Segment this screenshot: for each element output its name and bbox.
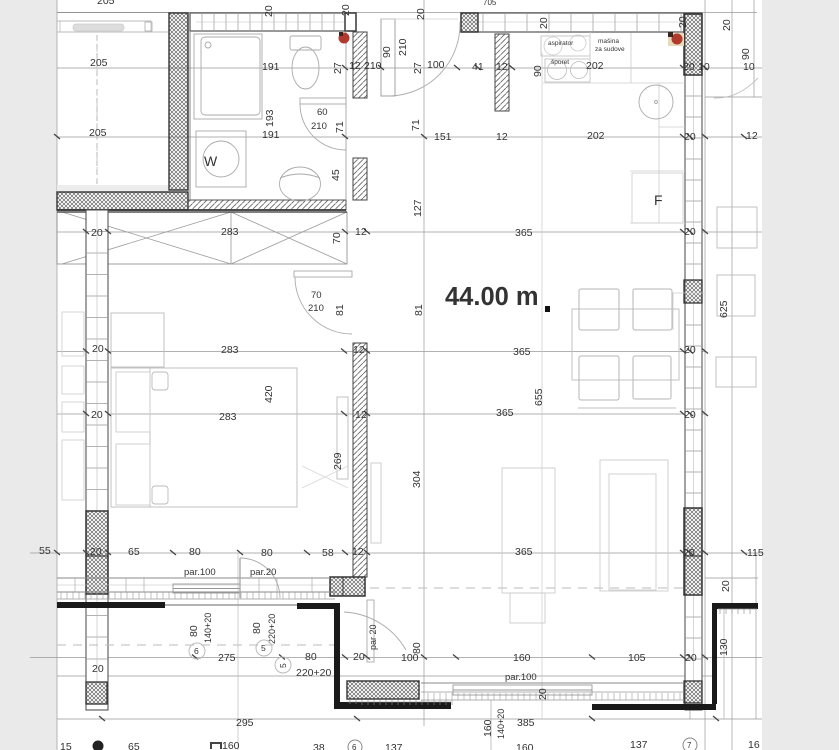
svg-text:100: 100 [427,59,445,71]
svg-text:220+20: 220+20 [296,667,331,679]
svg-text:304: 304 [411,470,423,488]
svg-text:6: 6 [194,646,199,656]
svg-text:210: 210 [364,60,382,72]
svg-text:365: 365 [515,546,533,558]
svg-text:115: 115 [747,547,764,559]
svg-text:12: 12 [349,60,361,72]
svg-text:par.100: par.100 [184,567,216,578]
svg-text:12: 12 [496,61,508,73]
svg-text:58: 58 [322,547,334,559]
svg-text:20: 20 [90,546,102,558]
svg-text:202: 202 [586,60,604,72]
svg-text:655: 655 [533,388,545,406]
svg-text:20: 20 [538,17,550,29]
svg-text:20: 20 [685,652,697,664]
svg-text:90: 90 [532,65,544,77]
svg-text:45: 45 [330,169,342,181]
svg-text:81: 81 [413,304,425,316]
svg-text:191: 191 [262,61,280,73]
svg-text:365: 365 [513,346,531,358]
svg-text:55: 55 [39,545,51,557]
svg-text:12: 12 [355,409,367,421]
svg-text:295: 295 [236,717,254,729]
svg-text:365: 365 [496,407,514,419]
svg-text:7: 7 [687,741,692,750]
svg-text:20: 20 [684,344,696,356]
svg-text:20: 20 [683,547,695,559]
svg-text:20: 20 [684,409,696,421]
svg-text:12: 12 [746,130,758,142]
svg-text:205: 205 [97,0,115,7]
svg-text:20: 20 [720,580,732,592]
svg-text:12: 12 [355,226,367,238]
svg-text:10: 10 [698,61,710,73]
svg-text:205: 205 [89,127,107,139]
svg-text:20: 20 [91,409,103,421]
svg-text:par 20: par 20 [368,624,378,650]
svg-text:20: 20 [684,131,696,143]
svg-text:41: 41 [472,61,484,73]
svg-text:160: 160 [516,742,534,750]
svg-text:202: 202 [587,130,605,142]
svg-text:625: 625 [718,300,730,318]
svg-text:65: 65 [128,741,140,750]
svg-text:151: 151 [434,131,452,143]
svg-text:20: 20 [92,663,104,675]
svg-text:16: 16 [748,739,760,750]
svg-text:420: 420 [263,385,275,403]
svg-text:par.20: par.20 [250,567,276,578]
svg-text:20: 20 [263,5,275,17]
svg-text:20: 20 [684,226,696,238]
svg-text:71: 71 [410,119,422,131]
svg-text:za sudove: za sudove [595,46,625,53]
svg-text:160: 160 [222,740,240,750]
svg-text:385: 385 [517,717,535,729]
svg-text:160: 160 [482,719,494,737]
svg-text:20: 20 [721,19,733,31]
svg-text:šporet: šporet [551,59,569,66]
svg-text:705: 705 [483,0,497,7]
svg-text:81: 81 [334,304,346,316]
svg-text:140+20: 140+20 [496,709,506,739]
svg-text:F: F [654,192,663,208]
svg-text:44.00 m: 44.00 m [445,283,539,311]
svg-text:20: 20 [537,688,549,700]
svg-text:283: 283 [221,344,239,356]
svg-text:193: 193 [264,109,276,127]
svg-text:80: 80 [251,622,263,634]
svg-text:205: 205 [90,57,108,69]
svg-text:71: 71 [334,121,346,133]
svg-text:27: 27 [412,62,424,74]
svg-text:6: 6 [352,743,357,750]
svg-text:90: 90 [381,46,393,58]
svg-text:210: 210 [311,121,327,132]
svg-text:12: 12 [353,344,365,356]
svg-text:20: 20 [340,4,352,16]
svg-text:20: 20 [415,8,427,20]
svg-text:140+20: 140+20 [203,613,213,643]
svg-text:70: 70 [331,232,343,244]
svg-text:5: 5 [278,663,288,668]
svg-text:5: 5 [261,643,266,653]
svg-text:127: 127 [412,199,424,217]
svg-text:80: 80 [261,547,273,559]
svg-text:70: 70 [311,290,322,301]
svg-text:105: 105 [628,652,646,664]
svg-text:275: 275 [218,652,236,664]
svg-text:365: 365 [515,227,533,239]
svg-text:80: 80 [411,642,423,654]
svg-text:160: 160 [513,652,531,664]
svg-text:137: 137 [630,739,648,750]
svg-text:60: 60 [317,107,328,118]
svg-text:20: 20 [91,227,103,239]
svg-text:12: 12 [352,546,364,558]
svg-text:20: 20 [353,651,365,663]
svg-text:27: 27 [332,62,344,74]
svg-text:10: 10 [743,61,755,73]
svg-text:210: 210 [397,38,409,56]
svg-text:15: 15 [60,741,72,750]
svg-text:283: 283 [219,411,237,423]
svg-text:W: W [204,153,218,169]
svg-text:80: 80 [189,546,201,558]
svg-text:191: 191 [262,129,280,141]
svg-text:210: 210 [308,303,324,314]
svg-text:20: 20 [683,61,695,73]
svg-text:283: 283 [221,226,239,238]
svg-text:par.100: par.100 [505,672,537,683]
svg-text:80: 80 [188,625,200,637]
svg-text:130: 130 [718,638,730,656]
svg-text:20: 20 [677,16,689,28]
svg-text:38: 38 [313,742,325,750]
svg-text:269: 269 [332,452,344,470]
svg-text:80: 80 [305,651,317,663]
svg-text:137: 137 [385,742,403,750]
svg-text:90: 90 [740,48,752,60]
svg-text:aspirator: aspirator [548,40,574,47]
svg-text:12: 12 [496,131,508,143]
svg-text:20: 20 [92,343,104,355]
svg-text:220+20: 220+20 [267,614,277,644]
svg-text:65: 65 [128,546,140,558]
svg-text:mašina: mašina [598,38,619,45]
